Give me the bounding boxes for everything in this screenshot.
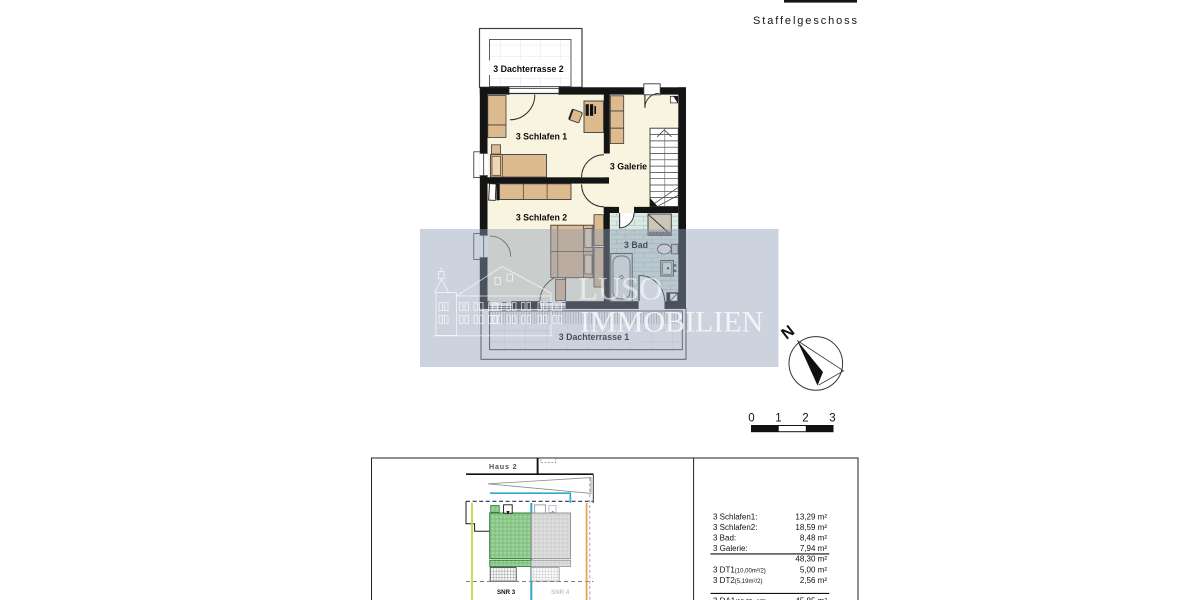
svg-text:3 Schlafen 2: 3 Schlafen 2 [516,213,567,223]
svg-text:SNR 4: SNR 4 [551,589,570,596]
svg-text:13,29 m²: 13,29 m² [795,513,827,522]
svg-text:3 Schlafen 1: 3 Schlafen 1 [516,132,567,142]
svg-text:1: 1 [775,413,781,425]
svg-text:18,59 m²: 18,59 m² [795,523,827,532]
svg-text:2,56 m²: 2,56 m² [800,576,827,585]
svg-text:N: N [778,323,798,344]
svg-text:3 Galerie:: 3 Galerie: [713,544,748,553]
svg-text:8,48 m²: 8,48 m² [800,533,827,542]
svg-text:Staffelgeschoss: Staffelgeschoss [753,15,859,27]
svg-text:LUSO: LUSO [578,272,662,308]
svg-text:2: 2 [802,413,808,425]
svg-text:0: 0 [748,413,754,425]
svg-text:IMMOBILIEN: IMMOBILIEN [580,306,763,339]
svg-text:3 Schlafen2:: 3 Schlafen2: [713,523,757,532]
svg-text:5,00 m²: 5,00 m² [800,565,827,574]
svg-text:45,85 m²: 45,85 m² [795,597,827,600]
svg-text:3 Galerie: 3 Galerie [610,162,647,172]
svg-text:48,30 m²: 48,30 m² [795,555,827,564]
svg-text:7,94 m²: 7,94 m² [800,544,827,553]
svg-text:Haus 2: Haus 2 [489,462,517,471]
svg-text:3 Bad:: 3 Bad: [713,533,736,542]
svg-text:3 Dachterrasse 2: 3 Dachterrasse 2 [493,64,564,74]
svg-text:3: 3 [829,413,835,425]
svg-text:SNR 3: SNR 3 [497,589,516,596]
svg-text:3 Schlafen1:: 3 Schlafen1: [713,513,757,522]
